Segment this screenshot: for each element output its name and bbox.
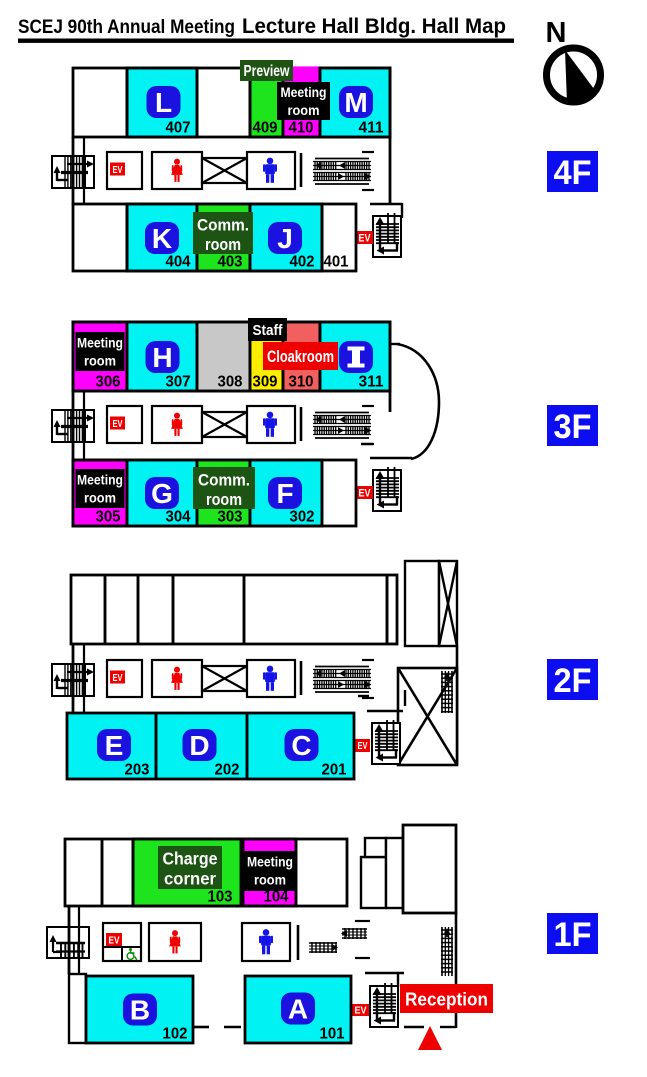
- svg-text:D: D: [189, 730, 209, 761]
- svg-text:A: A: [288, 994, 308, 1025]
- svg-text:102: 102: [163, 1026, 188, 1043]
- svg-text:403: 403: [218, 254, 243, 271]
- svg-text:EV: EV: [355, 1006, 367, 1017]
- svg-text:J: J: [277, 223, 293, 254]
- svg-text:Comm.: Comm.: [197, 216, 249, 235]
- svg-text:EV: EV: [113, 672, 123, 684]
- svg-text:Lecture Hall Bldg. Hall Map: Lecture Hall Bldg. Hall Map: [242, 15, 506, 38]
- svg-text:room: room: [205, 235, 241, 254]
- svg-text:B: B: [130, 995, 150, 1026]
- svg-text:H: H: [152, 342, 172, 373]
- svg-text:311: 311: [359, 374, 384, 391]
- svg-text:G: G: [151, 478, 173, 509]
- svg-text:307: 307: [166, 374, 191, 391]
- svg-text:3F: 3F: [554, 408, 592, 446]
- svg-text:Preview: Preview: [244, 63, 291, 80]
- svg-text:EV: EV: [359, 232, 372, 244]
- svg-text:SCEJ 90th Annual Meeting: SCEJ 90th Annual Meeting: [18, 17, 235, 38]
- svg-text:room: room: [84, 490, 116, 506]
- svg-text:101: 101: [320, 1026, 345, 1043]
- svg-text:EV: EV: [113, 164, 123, 176]
- svg-text:room: room: [206, 490, 242, 509]
- svg-text:302: 302: [290, 509, 315, 526]
- svg-text:306: 306: [96, 374, 121, 391]
- svg-text:2F: 2F: [554, 662, 592, 700]
- svg-text:410: 410: [289, 120, 314, 137]
- svg-text:203: 203: [125, 762, 150, 779]
- svg-text:104: 104: [264, 889, 289, 906]
- svg-text:Meeting: Meeting: [281, 84, 327, 100]
- svg-text:1F: 1F: [554, 916, 592, 954]
- svg-text:305: 305: [96, 509, 121, 526]
- svg-text:K: K: [152, 223, 172, 254]
- svg-text:Meeting: Meeting: [77, 335, 123, 351]
- svg-text:Comm.: Comm.: [198, 471, 250, 490]
- svg-text:402: 402: [290, 254, 315, 271]
- svg-text:308: 308: [218, 374, 243, 391]
- svg-text:310: 310: [289, 374, 314, 391]
- svg-text:Charge: Charge: [163, 849, 218, 869]
- svg-text:Cloakroom: Cloakroom: [267, 347, 334, 366]
- svg-text:room: room: [288, 102, 320, 118]
- svg-text:E: E: [105, 730, 124, 761]
- svg-text:room: room: [84, 353, 116, 369]
- svg-text:303: 303: [218, 509, 243, 526]
- svg-text:L: L: [155, 87, 172, 118]
- svg-text:409: 409: [253, 120, 278, 137]
- svg-text:407: 407: [166, 120, 191, 137]
- svg-text:411: 411: [359, 120, 384, 137]
- svg-text:Staff: Staff: [253, 322, 284, 339]
- svg-text:EV: EV: [359, 487, 372, 499]
- svg-text:EV: EV: [109, 934, 120, 946]
- svg-text:304: 304: [166, 509, 191, 526]
- svg-text:C: C: [291, 730, 311, 761]
- svg-text:EV: EV: [358, 741, 368, 752]
- svg-text:N: N: [546, 17, 567, 49]
- svg-text:4F: 4F: [554, 154, 592, 192]
- svg-text:Reception: Reception: [405, 990, 488, 1010]
- svg-text:309: 309: [253, 374, 278, 391]
- svg-text:M: M: [344, 87, 367, 118]
- svg-text:Meeting: Meeting: [247, 854, 293, 870]
- svg-text:202: 202: [215, 762, 240, 779]
- svg-text:EV: EV: [113, 418, 123, 430]
- svg-text:103: 103: [208, 889, 233, 906]
- svg-text:404: 404: [166, 254, 191, 271]
- svg-text:corner: corner: [164, 869, 216, 889]
- svg-text:Meeting: Meeting: [77, 472, 123, 488]
- svg-text:F: F: [276, 478, 293, 509]
- svg-text:401: 401: [324, 254, 349, 271]
- svg-text:201: 201: [322, 762, 347, 779]
- svg-text:room: room: [254, 872, 286, 888]
